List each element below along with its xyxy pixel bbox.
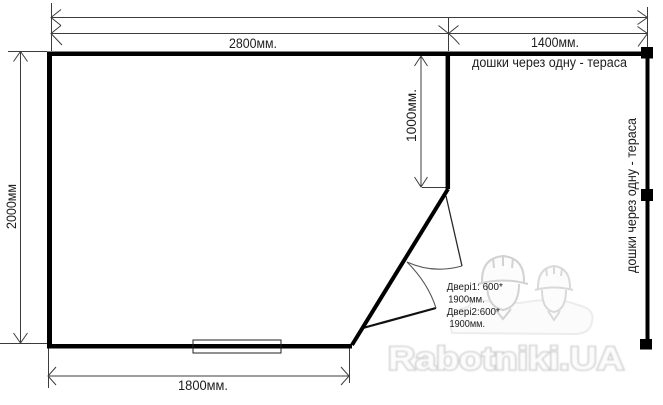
svg-text:1900мм.: 1900мм. [448,294,485,305]
svg-text:2800мм.: 2800мм. [229,36,277,52]
svg-text:2000мм: 2000мм [4,184,20,229]
svg-text:1400мм.: 1400мм. [531,35,579,51]
svg-text:Двері1: 600*: Двері1: 600* [447,282,503,293]
svg-text:1000мм.: 1000мм. [404,89,420,142]
svg-text:Двері2:600*: Двері2:600* [447,307,500,318]
svg-text:дошки через одну - тераса: дошки через одну - тераса [472,55,627,71]
svg-text:1900мм.: 1900мм. [450,319,486,330]
svg-text:Rabotniki.UA: Rabotniki.UA [388,341,624,377]
svg-text:дошки через одну - тераса: дошки через одну - тераса [624,118,640,273]
svg-text:1800мм.: 1800мм. [178,378,228,394]
